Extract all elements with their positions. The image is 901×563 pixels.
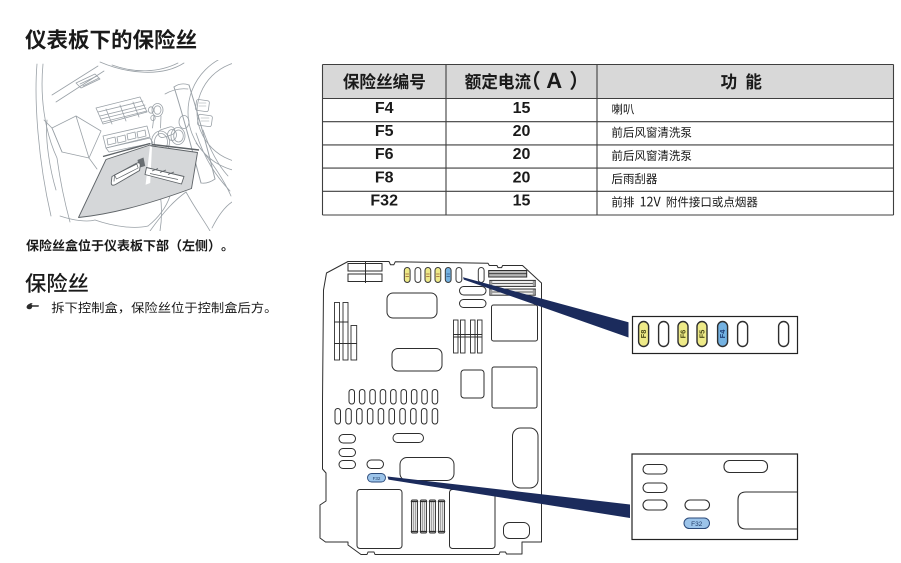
svg-text:F8: F8 bbox=[639, 330, 648, 339]
svg-text:F8: F8 bbox=[375, 169, 394, 186]
svg-text:20: 20 bbox=[513, 123, 531, 140]
svg-text:F32: F32 bbox=[691, 521, 703, 528]
svg-text:F6: F6 bbox=[679, 330, 688, 339]
svg-text:F32: F32 bbox=[373, 476, 381, 481]
svg-text:F6: F6 bbox=[375, 146, 394, 163]
svg-text:F32: F32 bbox=[370, 193, 398, 210]
svg-text:F4: F4 bbox=[375, 100, 394, 117]
svg-text:20: 20 bbox=[513, 146, 531, 163]
svg-text:20: 20 bbox=[513, 169, 531, 186]
svg-text:F5: F5 bbox=[375, 123, 394, 140]
svg-text:F4: F4 bbox=[718, 329, 727, 339]
svg-text:F5: F5 bbox=[698, 330, 707, 339]
svg-text:15: 15 bbox=[513, 100, 531, 117]
svg-text:15: 15 bbox=[513, 193, 531, 210]
